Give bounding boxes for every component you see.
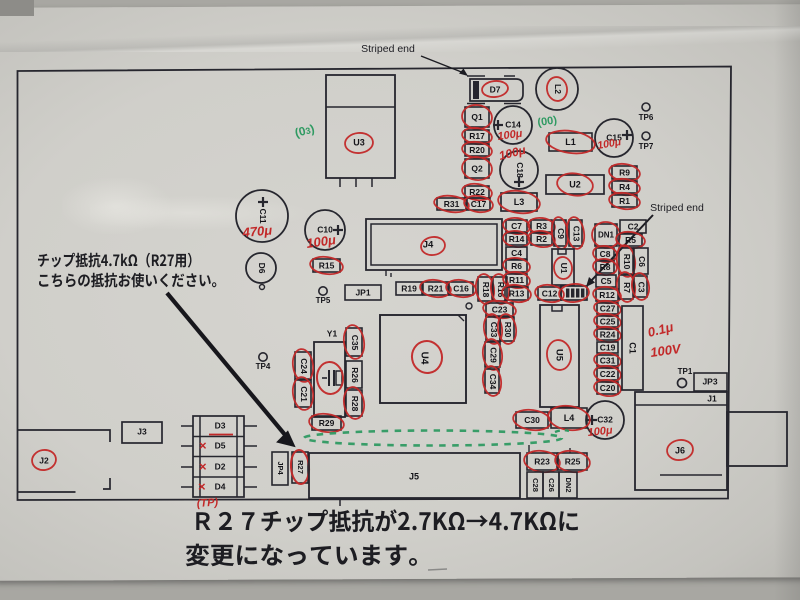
svg-text:C9: C9	[556, 228, 566, 239]
svg-text:C29: C29	[488, 347, 498, 363]
svg-text:DN1: DN1	[598, 231, 615, 240]
svg-text:C7: C7	[511, 221, 522, 231]
svg-text:Q1: Q1	[471, 112, 483, 122]
svg-text:C11: C11	[258, 208, 268, 223]
svg-text:C8: C8	[600, 249, 611, 259]
svg-text:R7: R7	[622, 282, 632, 293]
svg-text:×: ×	[198, 479, 206, 494]
svg-text:C22: C22	[600, 369, 616, 379]
svg-text:J2: J2	[39, 455, 49, 465]
svg-text:R17: R17	[469, 131, 485, 141]
svg-text:D7: D7	[490, 84, 501, 94]
svg-text:C27: C27	[600, 303, 616, 313]
svg-text:U3: U3	[353, 137, 365, 147]
svg-text:R3: R3	[536, 221, 547, 231]
svg-text:D4: D4	[215, 481, 226, 491]
svg-text:C34: C34	[488, 374, 498, 390]
svg-text:JP3: JP3	[702, 376, 717, 386]
svg-text:R8: R8	[600, 262, 611, 272]
svg-text:R28: R28	[350, 396, 360, 412]
svg-text:C5: C5	[601, 276, 612, 286]
svg-text:R4: R4	[619, 182, 630, 192]
svg-text:D6: D6	[257, 263, 267, 274]
svg-text:470μ: 470μ	[241, 222, 273, 240]
svg-text:Y1: Y1	[327, 328, 338, 338]
svg-text:100μ: 100μ	[497, 128, 524, 143]
svg-text:R9: R9	[619, 167, 630, 177]
svg-text:0.1μ: 0.1μ	[646, 319, 675, 340]
svg-text:TP5: TP5	[316, 296, 331, 305]
svg-text:U4: U4	[418, 352, 429, 365]
svg-text:R25: R25	[565, 456, 581, 466]
svg-text:C17: C17	[471, 199, 487, 209]
svg-text:J1: J1	[707, 393, 717, 403]
svg-text:100μ: 100μ	[587, 424, 613, 439]
svg-text:U5: U5	[553, 349, 564, 362]
svg-text:C31: C31	[600, 355, 616, 365]
svg-text:DN2: DN2	[564, 477, 573, 492]
svg-text:L2: L2	[553, 84, 563, 94]
svg-text:R15: R15	[319, 260, 335, 270]
svg-text:R18: R18	[481, 282, 491, 298]
svg-text:R6: R6	[511, 261, 522, 271]
svg-text:(TP): (TP)	[196, 497, 219, 510]
svg-text:R1: R1	[619, 196, 630, 206]
svg-text:100μ: 100μ	[596, 136, 622, 152]
svg-text:×: ×	[199, 438, 207, 453]
svg-text:D5: D5	[215, 440, 226, 450]
svg-text:R31: R31	[444, 199, 460, 209]
svg-text:R20: R20	[469, 145, 485, 155]
svg-text:JP1: JP1	[355, 287, 370, 297]
svg-text:C35: C35	[350, 335, 360, 351]
svg-text:Q2: Q2	[471, 163, 483, 173]
svg-text:L1: L1	[565, 137, 576, 147]
svg-text:TP6: TP6	[639, 113, 654, 122]
svg-text:R13: R13	[509, 288, 525, 298]
svg-text:J6: J6	[675, 445, 685, 455]
svg-text:L4: L4	[564, 413, 575, 423]
svg-text:C16: C16	[453, 283, 469, 293]
svg-text:D2: D2	[215, 461, 226, 471]
svg-text:Striped end: Striped end	[650, 202, 704, 214]
svg-text:C25: C25	[600, 316, 616, 326]
svg-text:R29: R29	[319, 418, 335, 428]
svg-text:U2: U2	[569, 179, 581, 189]
svg-text:C18: C18	[515, 162, 525, 178]
svg-text:R12: R12	[599, 290, 615, 300]
svg-text:100V: 100V	[649, 341, 682, 360]
svg-text:R19: R19	[401, 283, 417, 293]
svg-text:C13: C13	[571, 226, 581, 242]
svg-text:R26: R26	[350, 367, 360, 383]
svg-text:C4: C4	[511, 248, 522, 258]
svg-text:R2: R2	[536, 234, 547, 244]
svg-text:×: ×	[199, 459, 207, 474]
svg-text:D3: D3	[215, 420, 226, 430]
svg-text:C24: C24	[299, 358, 309, 374]
svg-text:U1: U1	[559, 263, 569, 274]
svg-text:C28: C28	[531, 478, 540, 492]
svg-text:J3: J3	[137, 426, 147, 436]
svg-text:C32: C32	[597, 414, 613, 424]
svg-text:C1: C1	[628, 342, 638, 354]
svg-text:R27: R27	[296, 460, 305, 474]
svg-text:L3: L3	[514, 197, 525, 207]
svg-text:C6: C6	[637, 256, 647, 267]
svg-text:J5: J5	[409, 471, 419, 481]
svg-text:JP4: JP4	[276, 461, 285, 475]
svg-text:R24: R24	[600, 329, 616, 339]
svg-text:R14: R14	[509, 234, 525, 244]
svg-text:C2: C2	[628, 221, 639, 231]
svg-text:(03): (03)	[293, 122, 315, 140]
svg-text:C26: C26	[547, 478, 556, 492]
svg-text:C12: C12	[542, 288, 558, 298]
svg-text:C30: C30	[524, 415, 540, 425]
svg-text:R21: R21	[428, 283, 444, 293]
svg-text:Striped end: Striped end	[361, 43, 415, 55]
svg-text:R5: R5	[625, 235, 636, 245]
svg-text:C23: C23	[492, 304, 508, 314]
svg-text:C20: C20	[600, 383, 616, 393]
svg-text:R23: R23	[534, 456, 550, 466]
svg-text:100μ: 100μ	[497, 143, 528, 163]
svg-text:TP4: TP4	[256, 362, 271, 371]
svg-text:(00): (00)	[537, 114, 558, 129]
svg-text:TP1: TP1	[678, 367, 693, 376]
svg-text:C21: C21	[299, 386, 309, 402]
svg-text:R30: R30	[503, 322, 513, 338]
svg-text:C19: C19	[600, 342, 616, 352]
svg-text:C3: C3	[636, 282, 646, 293]
svg-text:R11: R11	[509, 275, 524, 285]
svg-text:TP7: TP7	[639, 142, 654, 151]
svg-text:R10: R10	[622, 254, 632, 270]
